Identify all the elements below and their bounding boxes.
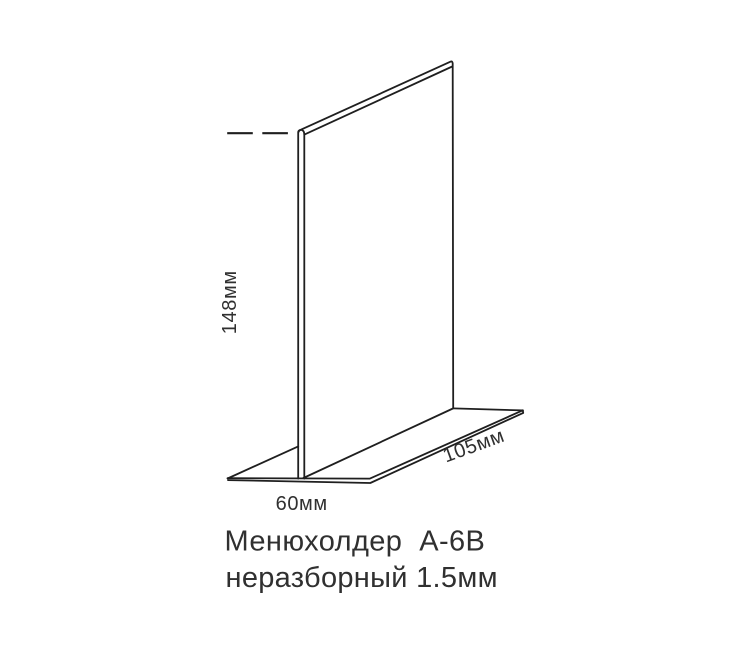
svg-text:Менюхолдер А-6В: Менюхолдер А-6В: [225, 526, 486, 558]
svg-text:60мм: 60мм: [276, 493, 328, 515]
svg-text:148мм: 148мм: [219, 270, 241, 334]
svg-text:105мм: 105мм: [440, 425, 508, 468]
svg-text:неразборный 1.5мм: неразборный 1.5мм: [226, 562, 498, 594]
